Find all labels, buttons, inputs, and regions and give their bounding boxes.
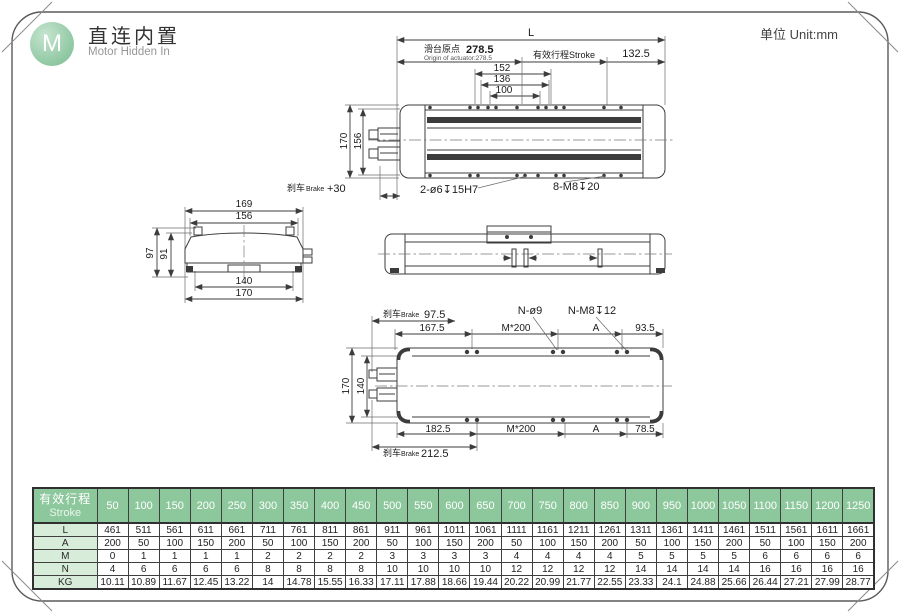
spec-cell: 16 <box>750 563 781 576</box>
spec-cell: 16 <box>781 563 812 576</box>
spec-cell: 17.88 <box>408 576 439 590</box>
spec-cell: 1 <box>128 550 159 563</box>
catalog-page: L 滑台原点 278.5 Origin of actuator:278.5 有效… <box>0 0 900 613</box>
spec-cell: 200 <box>97 537 128 550</box>
stroke-header-cell: 200 <box>190 488 221 523</box>
spec-cell: 25.66 <box>719 576 750 590</box>
spec-cell: 561 <box>159 523 190 537</box>
plan-brake-en: Brake <box>401 312 419 319</box>
spec-cell: 8 <box>283 563 314 576</box>
brake-cn: 刹车 <box>287 182 305 193</box>
motor-connector <box>369 128 400 160</box>
spec-cell: 1061 <box>470 523 501 537</box>
spec-cell: 10 <box>439 563 470 576</box>
stroke-header-cell: 850 <box>594 488 625 523</box>
dim-pitch-top: M*200 <box>502 323 531 334</box>
spec-cell: 200 <box>346 537 377 550</box>
row-label-cell: L <box>33 523 97 537</box>
spec-cell: 6 <box>781 550 812 563</box>
spec-cell: 50 <box>501 537 532 550</box>
spec-cell: 11.67 <box>159 576 190 590</box>
spec-cell: 4 <box>563 550 594 563</box>
spec-cell: 50 <box>128 537 159 550</box>
spec-cell: 1 <box>159 550 190 563</box>
spec-cell: 1111 <box>501 523 532 537</box>
spec-cell: 100 <box>408 537 439 550</box>
dim-origin-cn: 滑台原点 <box>424 43 460 54</box>
dim-170-end-view: 170 <box>236 288 253 299</box>
spec-cell: 1011 <box>439 523 470 537</box>
spec-cell: 4 <box>594 550 625 563</box>
spec-cell: 2 <box>346 550 377 563</box>
plan-brake2-en: Brake <box>401 451 419 458</box>
dim-169: 169 <box>236 199 253 210</box>
spec-cell: 50 <box>252 537 283 550</box>
spec-cell: 14 <box>252 576 283 590</box>
spec-cell: 8 <box>252 563 283 576</box>
callout-n-holes: N-ø9 <box>518 305 542 317</box>
stroke-header-cell: 300 <box>252 488 283 523</box>
stroke-header-cell: 1200 <box>812 488 843 523</box>
spec-cell: 12 <box>501 563 532 576</box>
plan-brake-value: 97.5 <box>424 309 445 321</box>
spec-cell: 150 <box>563 537 594 550</box>
table-row: L461511561611661711761811861911961101110… <box>33 523 874 537</box>
stroke-header-cell: 750 <box>532 488 563 523</box>
spec-cell: 200 <box>221 537 252 550</box>
dim-100: 100 <box>496 85 513 96</box>
spec-cell: 1261 <box>594 523 625 537</box>
spec-cell: 17.11 <box>377 576 408 590</box>
row-label-cell: N <box>33 563 97 576</box>
spec-cell: 6 <box>159 563 190 576</box>
spec-cell: 3 <box>439 550 470 563</box>
spec-cell: 16 <box>843 563 874 576</box>
row-label-cell: M <box>33 550 97 563</box>
spec-cell: 14 <box>687 563 718 576</box>
logo-letter: M <box>42 30 62 58</box>
spec-cell: 6 <box>190 563 221 576</box>
spec-cell: 100 <box>159 537 190 550</box>
brake-value: +30 <box>327 183 346 195</box>
spec-cell: 4 <box>501 550 532 563</box>
spec-cell: 50 <box>377 537 408 550</box>
spec-cell: 16 <box>812 563 843 576</box>
dim-140-plan: 140 <box>356 377 367 394</box>
top-view-drawing: L 滑台原点 278.5 Origin of actuator:278.5 有效… <box>287 27 674 200</box>
dim-182-5: 182.5 <box>425 424 450 435</box>
spec-cell: 21.77 <box>563 576 594 590</box>
spec-cell: 150 <box>315 537 346 550</box>
plan-brake-cn: 刹车 <box>383 308 401 319</box>
spec-cell: 1561 <box>781 523 812 537</box>
spec-cell: 8 <box>346 563 377 576</box>
dim-156-top-view: 156 <box>353 132 364 149</box>
spec-cell: 5 <box>656 550 687 563</box>
spec-cell: 3 <box>377 550 408 563</box>
row-label-cell: KG <box>33 576 97 590</box>
stroke-header-en: Stroke <box>34 507 97 520</box>
spec-cell: 28.77 <box>843 576 874 590</box>
spec-cell: 12 <box>532 563 563 576</box>
spec-cell: 1411 <box>687 523 718 537</box>
spec-cell: 10 <box>470 563 501 576</box>
spec-cell: 3 <box>408 550 439 563</box>
stroke-header-row: 有效行程 Stroke 5010015020025030035040045050… <box>33 488 874 523</box>
spec-cell: 10 <box>408 563 439 576</box>
stroke-header-cell: 950 <box>656 488 687 523</box>
actuator-body-top-view <box>400 105 665 178</box>
spec-cell: 23.33 <box>625 576 656 590</box>
table-row: N466668888101010101212121214141414161616… <box>33 563 874 576</box>
spec-cell: 1661 <box>843 523 874 537</box>
spec-cell: 511 <box>128 523 159 537</box>
spec-cell: 100 <box>532 537 563 550</box>
brake-en: Brake <box>306 186 324 193</box>
dim-91: 91 <box>159 248 170 260</box>
stroke-header-cell: 1100 <box>750 488 781 523</box>
spec-cell: 1511 <box>750 523 781 537</box>
stroke-header-cell: 350 <box>283 488 314 523</box>
spec-cell: 14 <box>656 563 687 576</box>
unit-label: 单位 Unit:mm <box>760 24 838 43</box>
dim-A-top: A <box>593 323 600 334</box>
spec-cell: 22.55 <box>594 576 625 590</box>
spec-table-body: L461511561611661711761811861911961101110… <box>33 523 874 589</box>
spec-cell: 1361 <box>656 523 687 537</box>
spec-cell: 18.66 <box>439 576 470 590</box>
stroke-header-cell: 100 <box>128 488 159 523</box>
stroke-header-cell: 450 <box>346 488 377 523</box>
stroke-header-cell: 250 <box>221 488 252 523</box>
stroke-header-cell: 600 <box>439 488 470 523</box>
spec-cell: 461 <box>97 523 128 537</box>
stroke-header-cell: 650 <box>470 488 501 523</box>
table-row: A200501001502005010015020050100150200501… <box>33 537 874 550</box>
spec-cell: 761 <box>283 523 314 537</box>
stroke-header-cell: 50 <box>97 488 128 523</box>
spec-cell: 10.11 <box>97 576 128 590</box>
spec-cell: 1611 <box>812 523 843 537</box>
stroke-header-cell: 700 <box>501 488 532 523</box>
page-subtitle: Motor Hidden In <box>88 46 170 58</box>
dim-origin-en: Origin of actuator:278.5 <box>424 55 492 62</box>
callout-n-threads: N-M8↧12 <box>568 305 616 317</box>
spec-cell: 6 <box>812 550 843 563</box>
dim-170-plan: 170 <box>341 377 352 394</box>
spec-cell: 0 <box>97 550 128 563</box>
dim-140-end-view: 140 <box>236 276 253 287</box>
dim-stroke-label: 有效行程Stroke <box>533 49 595 60</box>
spec-cell: 5 <box>687 550 718 563</box>
spec-cell: 2 <box>283 550 314 563</box>
spec-cell: 2 <box>315 550 346 563</box>
spec-cell: 100 <box>656 537 687 550</box>
spec-cell: 50 <box>750 537 781 550</box>
spec-cell: 4 <box>532 550 563 563</box>
stroke-header-cell: 1250 <box>843 488 874 523</box>
spec-cell: 1461 <box>719 523 750 537</box>
spec-cell: 13.22 <box>221 576 252 590</box>
dim-152: 152 <box>494 63 511 74</box>
stroke-header-cell: 550 <box>408 488 439 523</box>
spec-cell: 150 <box>439 537 470 550</box>
dim-78-5: 78.5 <box>635 424 655 435</box>
stroke-header-cell: 400 <box>315 488 346 523</box>
spec-cell: 150 <box>190 537 221 550</box>
spec-cell: 20.22 <box>501 576 532 590</box>
stroke-header-cell: 150 <box>159 488 190 523</box>
spec-cell: 611 <box>190 523 221 537</box>
spec-cell: 811 <box>315 523 346 537</box>
spec-cell: 12 <box>563 563 594 576</box>
spec-cell: 20.99 <box>532 576 563 590</box>
spec-cell: 200 <box>594 537 625 550</box>
spec-cell: 1 <box>221 550 252 563</box>
motor-connector-plan <box>369 368 397 401</box>
spec-cell: 12 <box>594 563 625 576</box>
spec-cell: 14 <box>719 563 750 576</box>
callout-dowel-holes: 2-ø6↧15H7 <box>420 184 478 196</box>
spec-cell: 15.55 <box>315 576 346 590</box>
table-row: M0111122223333444455556666 <box>33 550 874 563</box>
spec-cell: 14 <box>625 563 656 576</box>
page-title: 直连内置 <box>88 20 180 49</box>
plan-view-drawing: 刹车 Brake 97.5 167.5 N-ø9 N-M8↧12 M*200 A… <box>341 305 672 460</box>
spec-cell: 6 <box>128 563 159 576</box>
actuator-body-plan-view <box>397 348 663 423</box>
spec-cell: 1211 <box>563 523 594 537</box>
spec-cell: 26.44 <box>750 576 781 590</box>
spec-cell: 5 <box>719 550 750 563</box>
spec-cell: 100 <box>283 537 314 550</box>
dim-97: 97 <box>145 247 156 259</box>
stroke-header-cell: 1050 <box>719 488 750 523</box>
stroke-header-cell: 800 <box>563 488 594 523</box>
spec-cell: 200 <box>719 537 750 550</box>
table-row: KG10.1110.8911.6712.4513.221414.7815.551… <box>33 576 874 590</box>
stroke-header-label-cell: 有效行程 Stroke <box>33 488 97 523</box>
spec-cell: 3 <box>470 550 501 563</box>
dim-167-5: 167.5 <box>419 323 444 334</box>
plan-brake2-cn: 刹车 <box>383 447 401 458</box>
spec-cell: 6 <box>221 563 252 576</box>
spec-cell: 961 <box>408 523 439 537</box>
spec-cell: 150 <box>687 537 718 550</box>
spec-cell: 16.33 <box>346 576 377 590</box>
spec-cell: 50 <box>625 537 656 550</box>
spec-cell: 4 <box>97 563 128 576</box>
spec-cell: 27.99 <box>812 576 843 590</box>
plan-brake2-value: 212.5 <box>421 448 449 460</box>
spec-cell: 27.21 <box>781 576 812 590</box>
spec-cell: 24.88 <box>687 576 718 590</box>
dim-156-end-view: 156 <box>236 211 253 222</box>
end-view-drawing: 169 156 97 91 140 170 <box>145 199 312 303</box>
spec-cell: 19.44 <box>470 576 501 590</box>
mount-screws <box>428 106 623 178</box>
spec-cell: 8 <box>315 563 346 576</box>
spec-cell: 1311 <box>625 523 656 537</box>
stroke-header-cell: 900 <box>625 488 656 523</box>
spec-cell: 6 <box>843 550 874 563</box>
dim-L: L <box>528 27 534 39</box>
spec-table-container: 有效行程 Stroke 5010015020025030035040045050… <box>32 487 875 590</box>
spec-cell: 1161 <box>532 523 563 537</box>
spec-table: 有效行程 Stroke 5010015020025030035040045050… <box>32 487 875 590</box>
spec-cell: 2 <box>252 550 283 563</box>
row-label-cell: A <box>33 537 97 550</box>
dim-A-bottom: A <box>593 424 600 435</box>
spec-cell: 1 <box>190 550 221 563</box>
spec-cell: 200 <box>470 537 501 550</box>
stroke-header-cell: 1150 <box>781 488 812 523</box>
dim-pitch-bottom: M*200 <box>507 424 536 435</box>
stroke-header-cell: 500 <box>377 488 408 523</box>
spec-cell: 5 <box>625 550 656 563</box>
spec-cell: 14.78 <box>283 576 314 590</box>
spec-cell: 10 <box>377 563 408 576</box>
spec-cell: 100 <box>781 537 812 550</box>
callout-thread-holes: 8-M8↧20 <box>553 181 600 193</box>
series-logo: M <box>30 22 74 66</box>
spec-cell: 150 <box>812 537 843 550</box>
side-view-drawing <box>378 226 672 274</box>
spec-cell: 711 <box>252 523 283 537</box>
stroke-header-cn: 有效行程 <box>34 492 97 507</box>
dim-93-5: 93.5 <box>635 323 655 334</box>
spec-cell: 661 <box>221 523 252 537</box>
dim-170-top-view: 170 <box>339 132 350 149</box>
spec-cell: 861 <box>346 523 377 537</box>
spec-cell: 200 <box>843 537 874 550</box>
spec-cell: 911 <box>377 523 408 537</box>
spec-cell: 6 <box>750 550 781 563</box>
dim-132-5: 132.5 <box>622 48 650 60</box>
dim-136: 136 <box>494 74 511 85</box>
spec-cell: 12.45 <box>190 576 221 590</box>
spec-cell: 24.1 <box>656 576 687 590</box>
spec-cell: 10.89 <box>128 576 159 590</box>
stroke-header-cell: 1000 <box>687 488 718 523</box>
